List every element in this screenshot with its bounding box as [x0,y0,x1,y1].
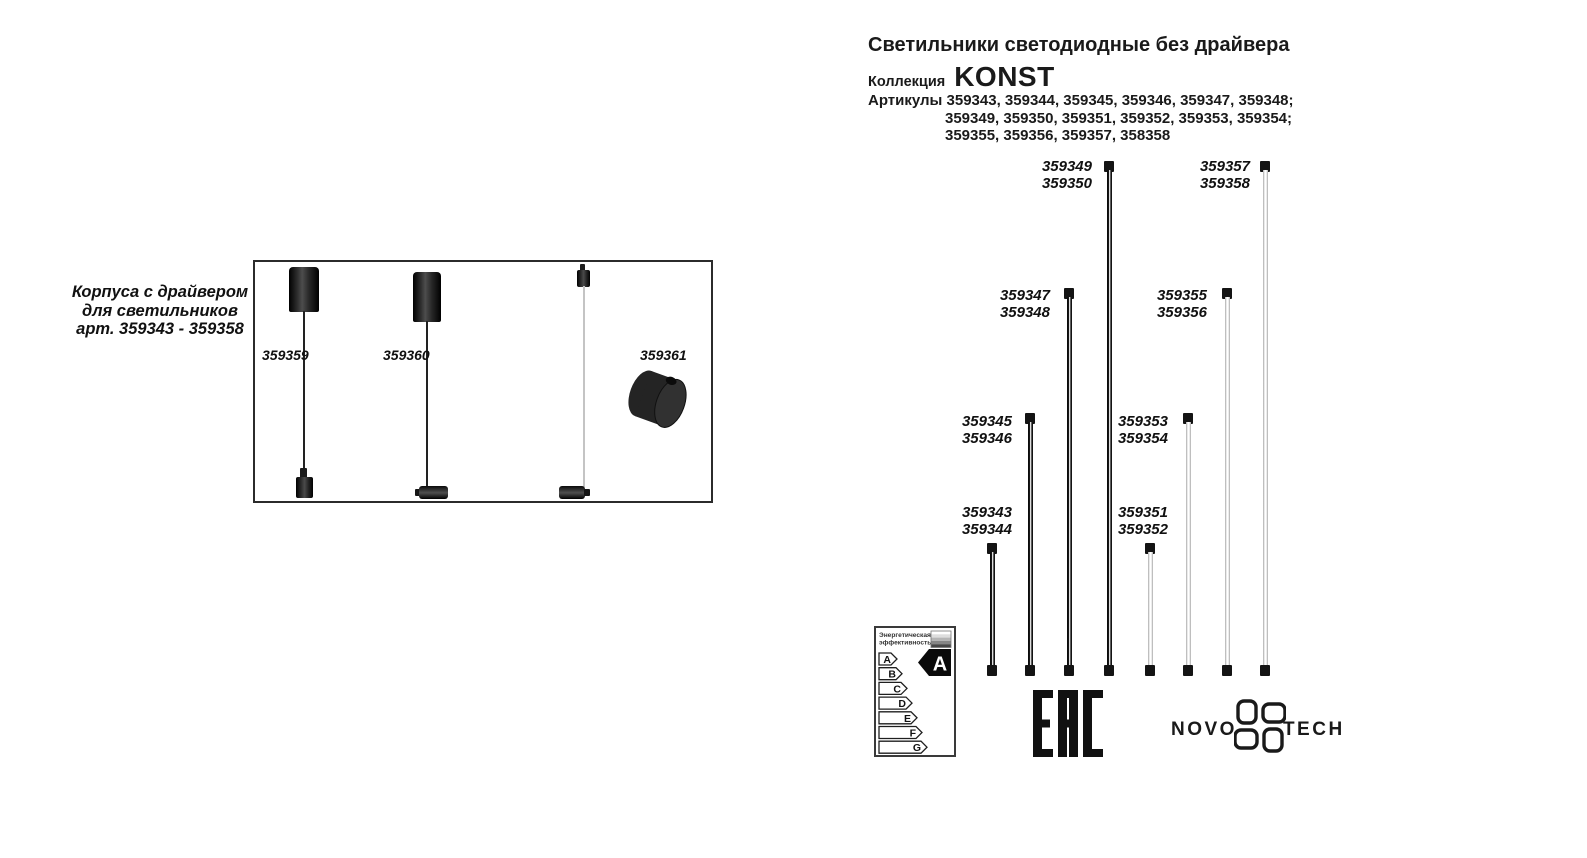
rod-label-359349-359350: 359349359350 [1042,159,1092,192]
rod-359357-359358 [1260,161,1270,676]
rod-label-359345-359346: 359345359346 [962,414,1012,447]
collection-label: Коллекция [868,74,945,90]
driver-drum-359361 [626,366,696,434]
energy-gradient-swatch [931,631,951,648]
rod-359343-359344 [987,543,997,676]
brand-word-left: NOVO [1171,719,1237,741]
svg-text:G: G [913,742,921,754]
rod-label-359353-359354: 359353359354 [1118,414,1168,447]
rod-359351-359352 [1145,543,1155,676]
suspension-connector-nub [584,489,590,496]
svg-text:F: F [910,728,917,740]
rod-label-359351-359352: 359351359352 [1118,505,1168,538]
caption-line: для светильников [68,302,252,321]
product-sheet: Корпуса с драйвером для светильников арт… [0,0,1587,858]
eac-logo [1033,690,1103,762]
part-label-359359: 359359 [262,347,309,363]
caption-line: арт. 359343 - 359358 [68,320,252,339]
suspension-top-cap [577,270,590,287]
collection-row: Коллекция KONST [868,61,1055,93]
part-label-359361: 359361 [640,347,687,363]
pendant-connector-359359 [296,477,313,498]
rod-label-359343-359344: 359343359344 [962,505,1012,538]
suspension-wire [583,286,585,487]
svg-text:D: D [898,698,906,710]
driver-housings-caption: Корпуса с драйвером для светильников арт… [68,283,252,339]
clover-icon [1234,698,1286,754]
rod-359353-359354 [1183,413,1193,676]
rod-label-359347-359348: 359347359348 [1000,288,1050,321]
novotech-logo: NOVO TECH [1171,698,1345,754]
pendant-canopy-359360 [413,272,441,322]
rod-label-359355-359356: 359355359356 [1157,288,1207,321]
eac-glyph [1033,690,1103,757]
collection-name: KONST [954,61,1055,93]
brand-word-right: TECH [1283,719,1345,741]
caption-line: Корпуса с драйвером [68,283,252,302]
pendant-cord-359359 [303,311,305,469]
rod-359349-359350 [1104,161,1114,676]
energy-header-line1: Энергетическая [879,632,931,639]
energy-efficiency-label: Энергетическая эффективность A [874,626,956,757]
energy-efficiency-chart: Энергетическая эффективность A [876,628,954,755]
suspension-connector [559,486,585,499]
pendant-connector-359360 [419,486,448,499]
energy-rating-arrow: A [918,649,951,676]
svg-text:B: B [888,669,896,681]
rod-label-359357-359358: 359357359358 [1200,159,1250,192]
page-title: Светильники светодиодные без драйвера [868,34,1289,57]
rod-359345-359346 [1025,413,1035,676]
pendant-canopy-359359 [289,267,319,312]
articles-line-2: 359349, 359350, 359351, 359352, 359353, … [868,110,1294,128]
part-label-359360: 359360 [383,347,430,363]
articles-list: Артикулы 359343, 359344, 359345, 359346,… [868,92,1294,145]
svg-text:A: A [883,654,891,666]
rod-359355-359356 [1222,288,1232,676]
articles-line-3: 359355, 359356, 359357, 358358 [868,127,1294,145]
svg-text:C: C [893,683,901,695]
energy-header-line2: эффективность [879,640,931,647]
rod-359347-359348 [1064,288,1074,676]
energy-rating-letter: A [933,654,947,676]
articles-label: Артикулы [868,92,942,109]
svg-text:E: E [904,713,911,725]
articles-line-1: Артикулы 359343, 359344, 359345, 359346,… [868,92,1294,110]
